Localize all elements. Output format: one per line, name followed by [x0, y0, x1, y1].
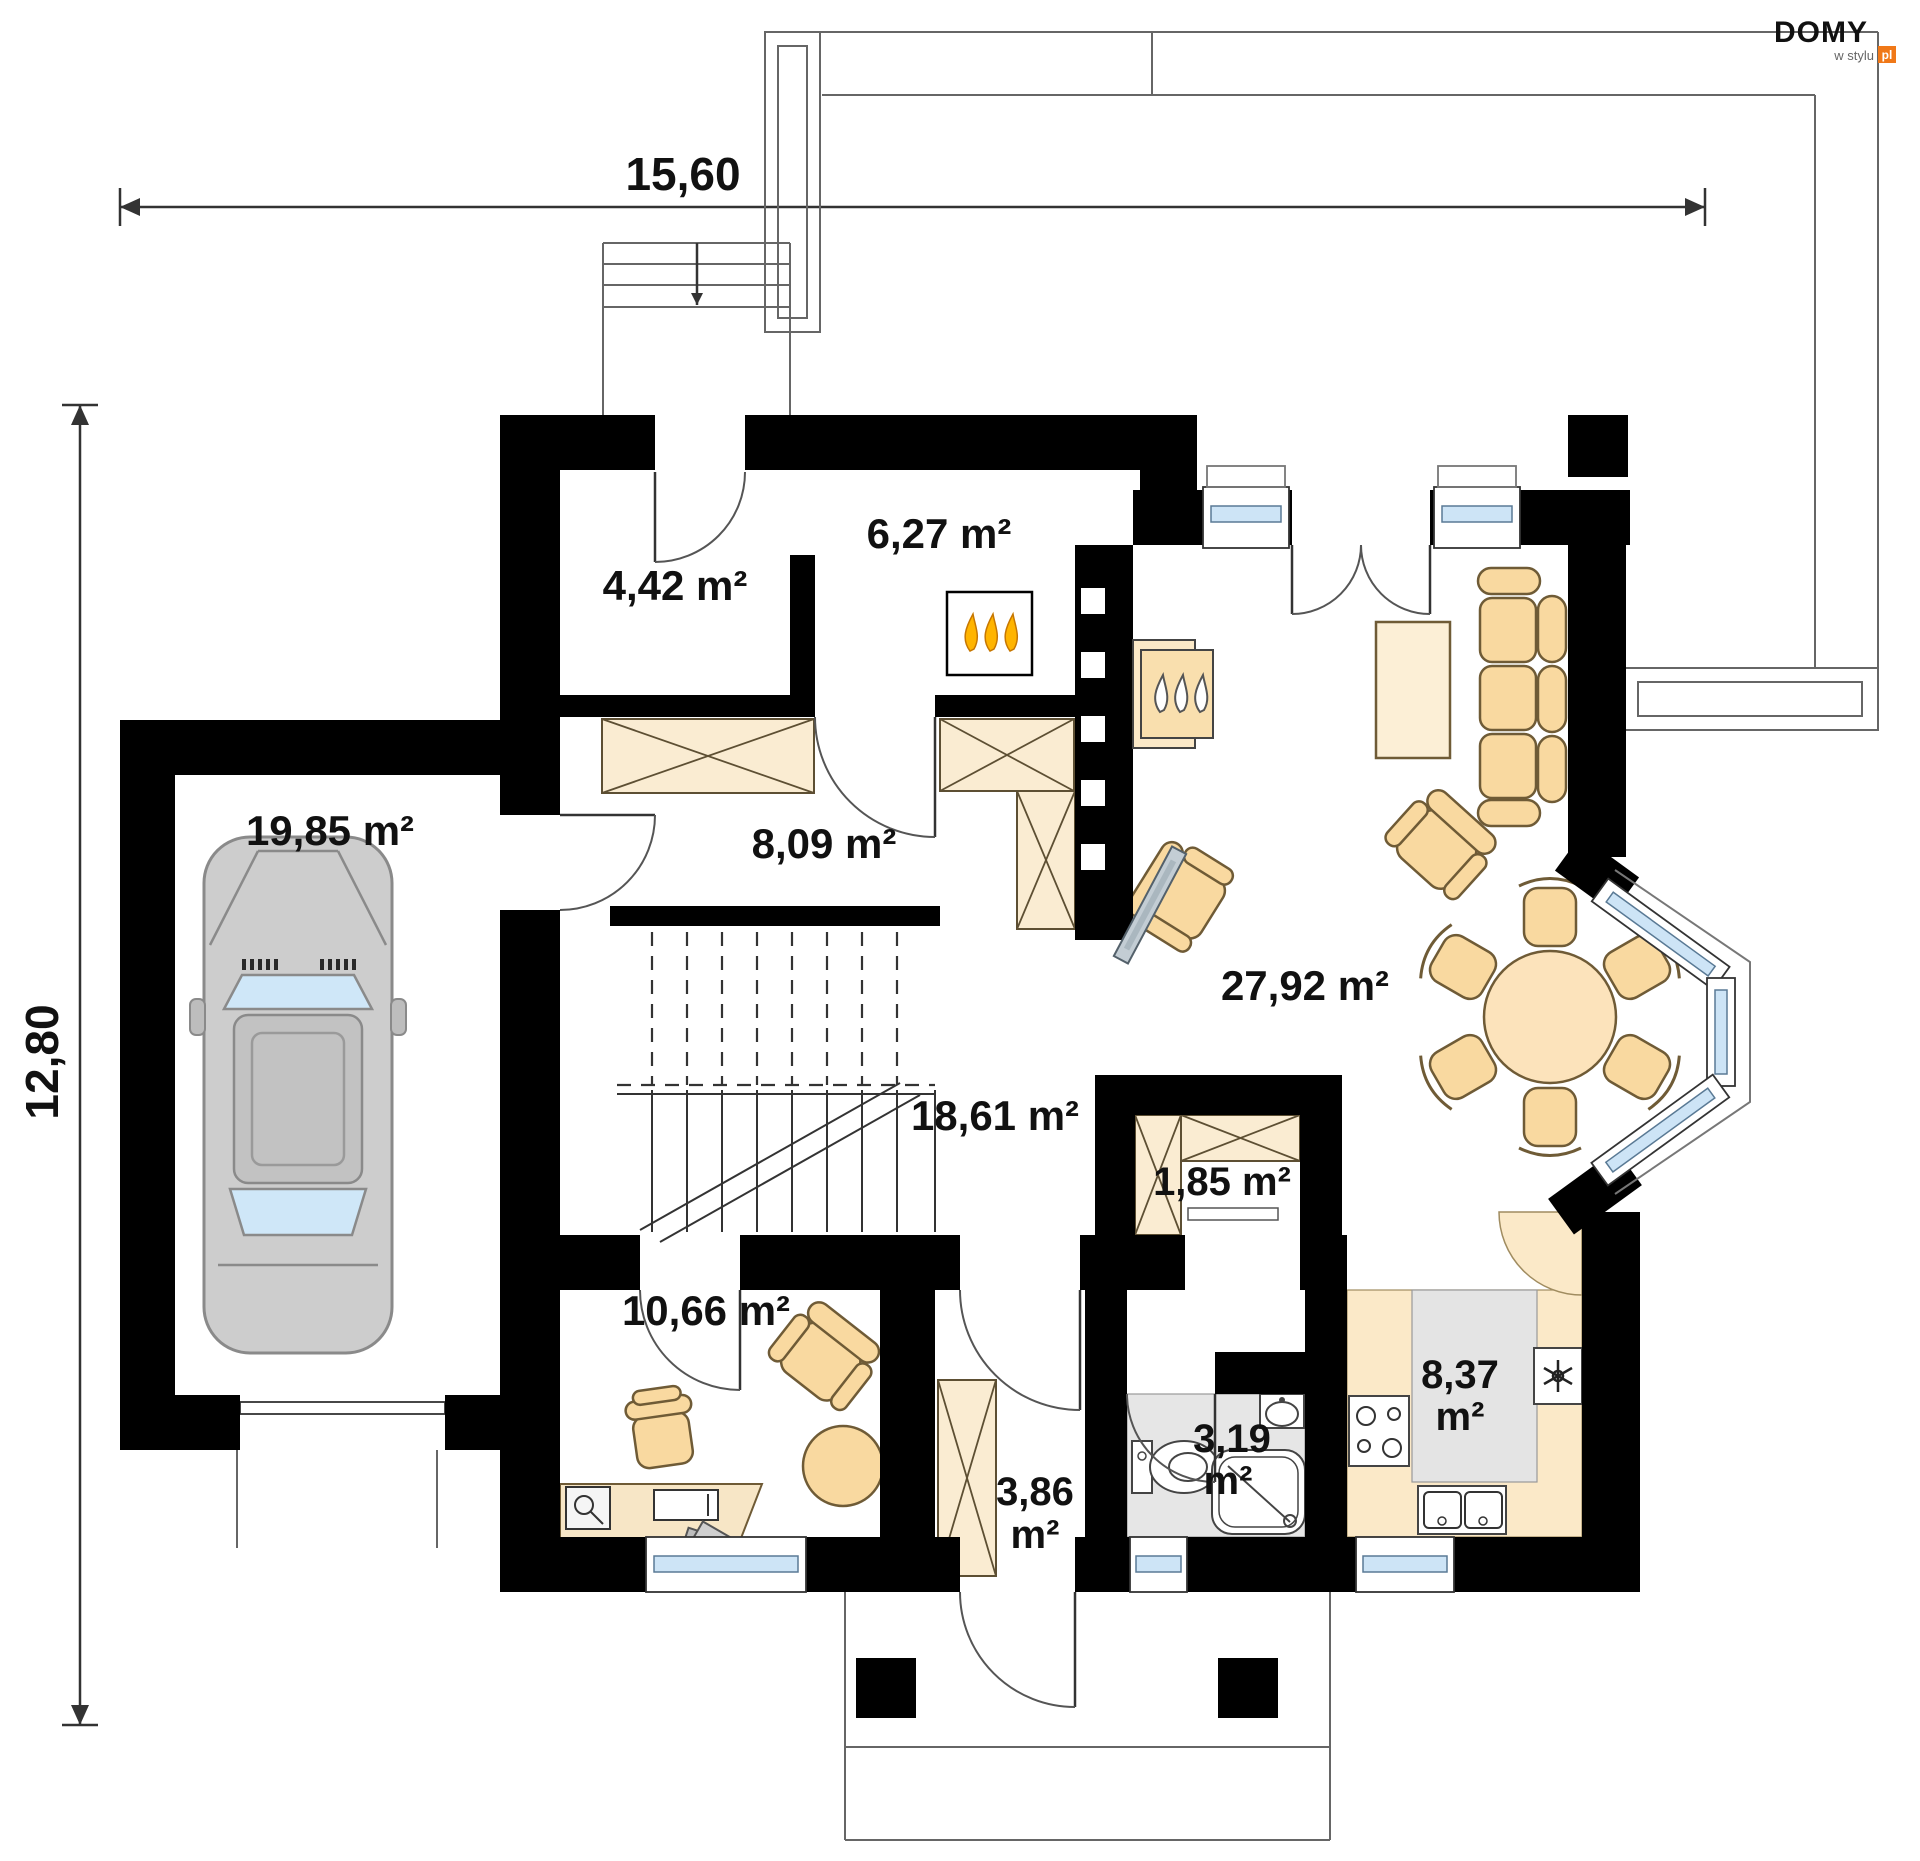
floor-plan-page: 15,60 12,80	[0, 0, 1920, 1861]
coffee-table	[1376, 622, 1450, 758]
svg-text:3,19: 3,19	[1193, 1417, 1271, 1461]
dimension-height-label: 12,80	[16, 1004, 68, 1119]
svg-text:m²: m²	[1011, 1513, 1060, 1557]
vestibule-area-label: 6,27 m²	[867, 510, 1012, 557]
office-chair	[623, 1384, 699, 1470]
car-mirror	[190, 999, 205, 1035]
terrace-step	[1622, 668, 1878, 730]
corridor-area-label: 3,86 m²	[996, 1470, 1074, 1557]
inner-hall-area-label: 18,61 m²	[911, 1092, 1079, 1139]
window	[1356, 1537, 1454, 1592]
window	[646, 1537, 806, 1592]
fireplace-flames-icon	[1155, 675, 1207, 712]
pantry-area-label: 1,85 m²	[1153, 1160, 1291, 1204]
stove	[1349, 1396, 1409, 1466]
porch-pillar	[856, 1658, 916, 1718]
flame-icon	[965, 614, 1017, 651]
office-area-label: 10,66 m²	[622, 1287, 790, 1334]
svg-text:m²: m²	[1436, 1395, 1485, 1439]
chimney-pillar	[1568, 415, 1628, 477]
dining-table	[1484, 951, 1616, 1083]
dimension-width: 15,60	[120, 148, 1705, 226]
svg-text:3,86: 3,86	[996, 1470, 1074, 1514]
stairs	[617, 932, 935, 1242]
terrace-french-doors	[1292, 545, 1430, 614]
terrace-outline	[765, 32, 1878, 730]
window	[1434, 466, 1520, 548]
dining-chair	[1519, 1088, 1581, 1156]
wardrobe	[602, 719, 814, 793]
chimney-outline	[765, 32, 820, 332]
entrance-steps	[603, 243, 790, 415]
pouf	[803, 1426, 883, 1506]
dining-chair	[1519, 879, 1581, 947]
svg-text:m²: m²	[1204, 1459, 1253, 1503]
kitchen-sink	[1418, 1486, 1506, 1534]
driveway	[237, 1402, 445, 1548]
sofa	[1478, 568, 1566, 826]
logo-tagline-text: w stylu	[1833, 48, 1874, 63]
wardrobe	[1181, 1115, 1300, 1161]
garage-gate	[240, 1402, 445, 1414]
bottom-porch	[845, 1592, 1330, 1840]
floor-plan-canvas: 15,60 12,80	[0, 0, 1920, 1861]
hall-area-label: 8,09 m²	[752, 820, 897, 867]
wardrobe	[1017, 791, 1075, 929]
garage-door	[560, 815, 655, 910]
wardrobe	[940, 719, 1074, 791]
wall-dot	[141, 796, 159, 814]
porch-pillar	[1218, 1658, 1278, 1718]
logo-brand-text: DOMY	[1774, 16, 1868, 49]
living-room-area-label: 27,92 m²	[1221, 962, 1389, 1009]
logo-tld-text: pl	[1882, 48, 1893, 62]
boiler-stove	[947, 592, 1032, 675]
window	[1130, 1537, 1187, 1592]
window	[1203, 466, 1289, 548]
car	[190, 837, 406, 1353]
dimension-height: 12,80	[16, 405, 98, 1725]
porch-door	[960, 1592, 1075, 1707]
dimension-width-label: 15,60	[625, 148, 740, 200]
garage-area-label: 19,85 m²	[246, 807, 414, 854]
pantry-shelf	[1188, 1208, 1278, 1220]
vestibule-hall-door	[815, 717, 935, 837]
desk-lamp	[566, 1487, 610, 1529]
fridge	[1534, 1348, 1582, 1404]
boiler-room-area-label: 4,42 m²	[603, 562, 748, 609]
car-mirror	[391, 999, 406, 1035]
entrance-door	[655, 472, 745, 562]
svg-text:8,37: 8,37	[1421, 1353, 1499, 1397]
